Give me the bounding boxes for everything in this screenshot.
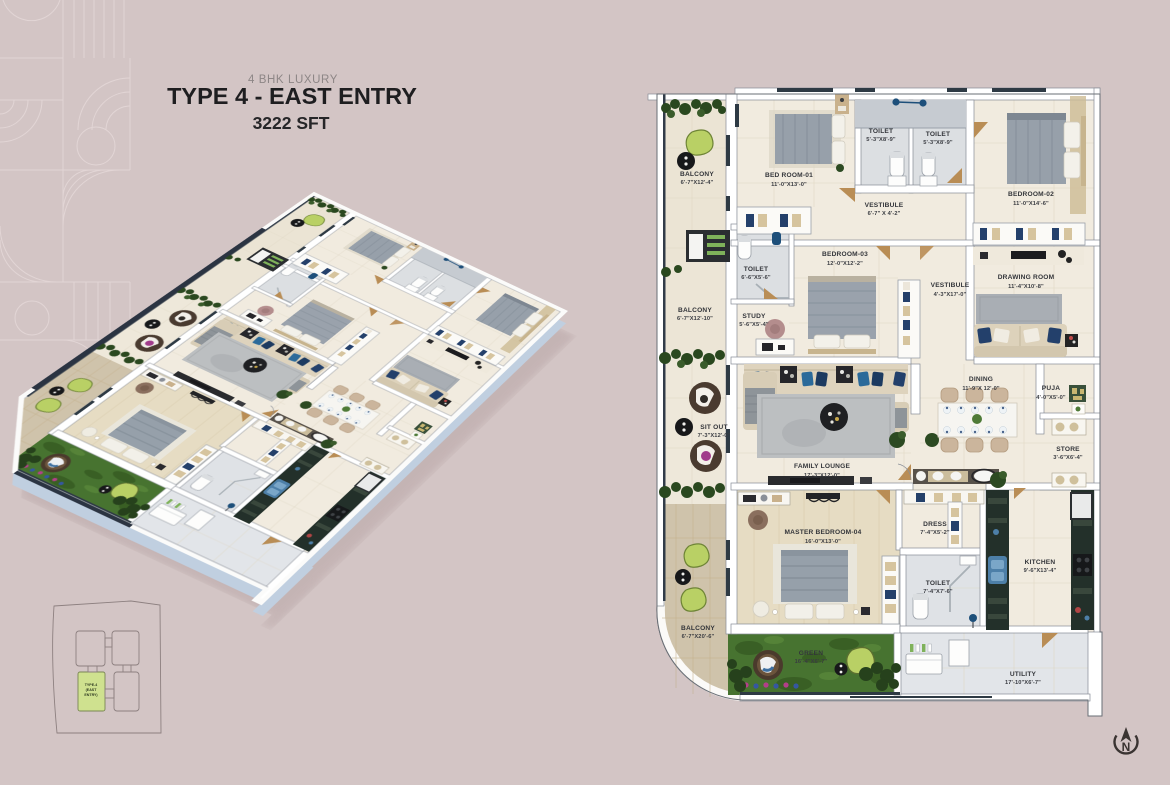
svg-text:6'-6"X5'-6": 6'-6"X5'-6"	[741, 275, 771, 281]
svg-text:DINING: DINING	[969, 376, 993, 383]
svg-text:DRESS: DRESS	[923, 521, 947, 528]
svg-text:17'-10"X6'-7": 17'-10"X6'-7"	[1005, 680, 1041, 686]
svg-text:GREEN: GREEN	[799, 650, 823, 657]
svg-text:5'-3"X8'-9": 5'-3"X8'-9"	[866, 137, 896, 143]
svg-text:PUJA: PUJA	[1042, 385, 1060, 392]
svg-text:7'-3"X12'-0": 7'-3"X12'-0"	[698, 433, 731, 439]
svg-text:16'-4"X6'-7": 16'-4"X6'-7"	[795, 659, 828, 665]
svg-text:11'-9"X 12'-0": 11'-9"X 12'-0"	[962, 386, 1000, 392]
svg-text:6'-7" X 4'-2": 6'-7" X 4'-2"	[868, 211, 901, 217]
svg-text:11'-0"X13'-0": 11'-0"X13'-0"	[771, 182, 807, 188]
svg-text:BEDROOM-02: BEDROOM-02	[1008, 191, 1054, 198]
svg-text:BEDROOM-03: BEDROOM-03	[822, 251, 868, 258]
svg-text:(EAST: (EAST	[86, 688, 98, 692]
svg-text:7'-4"X7'-6": 7'-4"X7'-6"	[923, 589, 953, 595]
svg-text:BALCONY: BALCONY	[680, 171, 714, 178]
svg-text:STORE: STORE	[1056, 446, 1080, 453]
svg-text:FAMILY LOUNGE: FAMILY LOUNGE	[794, 463, 850, 470]
svg-text:VESTIBULE: VESTIBULE	[931, 282, 970, 289]
svg-text:BALCONY: BALCONY	[678, 307, 712, 314]
svg-text:4'-0"X5'-0": 4'-0"X5'-0"	[1036, 395, 1066, 401]
svg-text:12'-0"X12'-2": 12'-0"X12'-2"	[827, 261, 863, 267]
svg-text:11'-0"X14'-6": 11'-0"X14'-6"	[1013, 201, 1049, 207]
svg-text:KITCHEN: KITCHEN	[1025, 559, 1056, 566]
svg-text:4'-3"X17'-0": 4'-3"X17'-0"	[934, 292, 967, 298]
svg-text:17'-3"X12'-0": 17'-3"X12'-0"	[804, 473, 840, 479]
svg-text:5'-3"X8'-9": 5'-3"X8'-9"	[923, 140, 953, 146]
svg-text:7'-4"X5'-2": 7'-4"X5'-2"	[920, 530, 950, 536]
svg-text:ENTRY): ENTRY)	[84, 693, 98, 697]
svg-text:DRAWING ROOM: DRAWING ROOM	[998, 274, 1055, 281]
svg-text:TOILET: TOILET	[744, 266, 769, 273]
svg-text:MASTER BEDROOM-04: MASTER BEDROOM-04	[784, 529, 861, 536]
svg-text:VESTIBULE: VESTIBULE	[865, 202, 904, 209]
svg-text:SIT OUT: SIT OUT	[700, 424, 727, 431]
svg-text:9'-6"X13'-4": 9'-6"X13'-4"	[1024, 568, 1057, 574]
svg-text:TYPE-4: TYPE-4	[85, 683, 98, 687]
svg-text:TOILET: TOILET	[926, 580, 951, 587]
svg-text:5'-6"X5'-4": 5'-6"X5'-4"	[739, 322, 769, 328]
svg-text:6'-7"X20'-6": 6'-7"X20'-6"	[682, 634, 715, 640]
svg-text:6'-7"X12'-4": 6'-7"X12'-4"	[681, 180, 714, 186]
svg-text:TYPE 4 - EAST ENTRY: TYPE 4 - EAST ENTRY	[167, 83, 417, 109]
svg-text:6'-7"X12'-10": 6'-7"X12'-10"	[677, 316, 713, 322]
svg-text:N: N	[1122, 740, 1131, 754]
svg-text:TOILET: TOILET	[869, 128, 894, 135]
svg-text:3'-6"X6'-4": 3'-6"X6'-4"	[1053, 455, 1083, 461]
svg-text:11'-4"X10'-8": 11'-4"X10'-8"	[1008, 284, 1044, 290]
svg-text:BED ROOM-01: BED ROOM-01	[765, 172, 813, 179]
svg-text:BALCONY: BALCONY	[681, 625, 715, 632]
svg-text:3222 SFT: 3222 SFT	[253, 113, 330, 133]
svg-text:STUDY: STUDY	[742, 313, 766, 320]
svg-text:TOILET: TOILET	[926, 131, 951, 138]
svg-text:16'-0"X13'-0": 16'-0"X13'-0"	[805, 539, 841, 545]
svg-text:UTILITY: UTILITY	[1010, 671, 1037, 678]
